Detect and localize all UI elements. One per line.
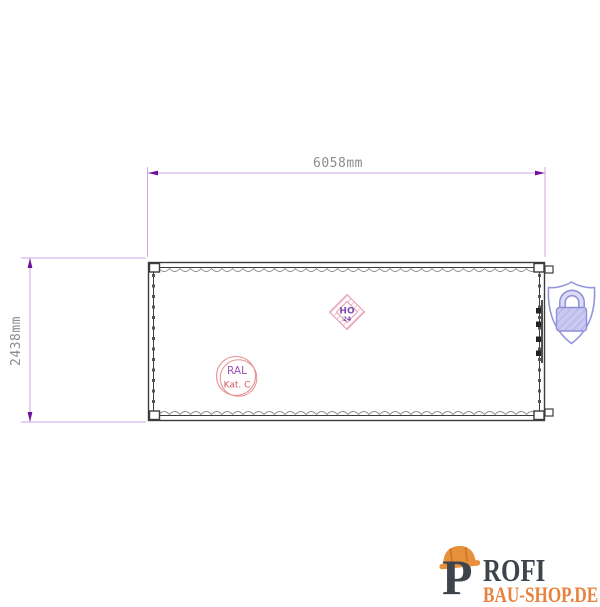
logo-line1: ROFI: [483, 555, 598, 585]
arrowhead-up-icon: [28, 258, 33, 268]
logo-wordmark: ROFI BAU-SHOP.DE: [483, 555, 600, 605]
width-dimension-label: 6058mm: [313, 156, 363, 171]
top-dimension: 6058mm: [148, 156, 546, 257]
arrowhead-left-icon: [148, 171, 158, 176]
shield-lock-icon: [548, 282, 594, 344]
ho-diamond-stamp: HO 24: [330, 295, 365, 330]
ral-stamp: RAL Kat. C: [217, 357, 257, 397]
corner-tab-top-right: [545, 266, 553, 273]
arrowhead-down-icon: [28, 412, 33, 422]
ho-stamp-label: HO: [339, 307, 355, 317]
left-dimension: 2438mm: [9, 258, 146, 422]
corner-fitting-top-right: [534, 264, 544, 273]
ral-stamp-label: RAL: [227, 365, 247, 377]
container-outline: [149, 263, 554, 421]
bottom-wall-corrugation: [159, 412, 537, 415]
corner-tab-bottom-right: [545, 409, 553, 416]
outer-wall: [149, 263, 545, 421]
container-floorplan-drawing: 6058mm 2438mm: [0, 0, 600, 600]
arrowhead-right-icon: [535, 171, 545, 176]
top-wall-corrugation: [159, 269, 537, 272]
corner-fitting-bottom-right: [534, 411, 544, 420]
height-dimension-label: 2438mm: [9, 316, 24, 366]
padlock-body: [557, 308, 587, 332]
logo-line2: BAU-SHOP.DE: [483, 585, 598, 605]
ho-stamp-sub-label: 24: [343, 316, 351, 323]
logo-initial: P: [442, 552, 473, 602]
corner-fitting-bottom-left: [150, 411, 160, 420]
corner-fitting-top-left: [150, 264, 160, 273]
ral-stamp-category: Kat. C: [224, 381, 251, 391]
shop-logo: P ROFI BAU-SHOP.DE: [437, 543, 600, 600]
